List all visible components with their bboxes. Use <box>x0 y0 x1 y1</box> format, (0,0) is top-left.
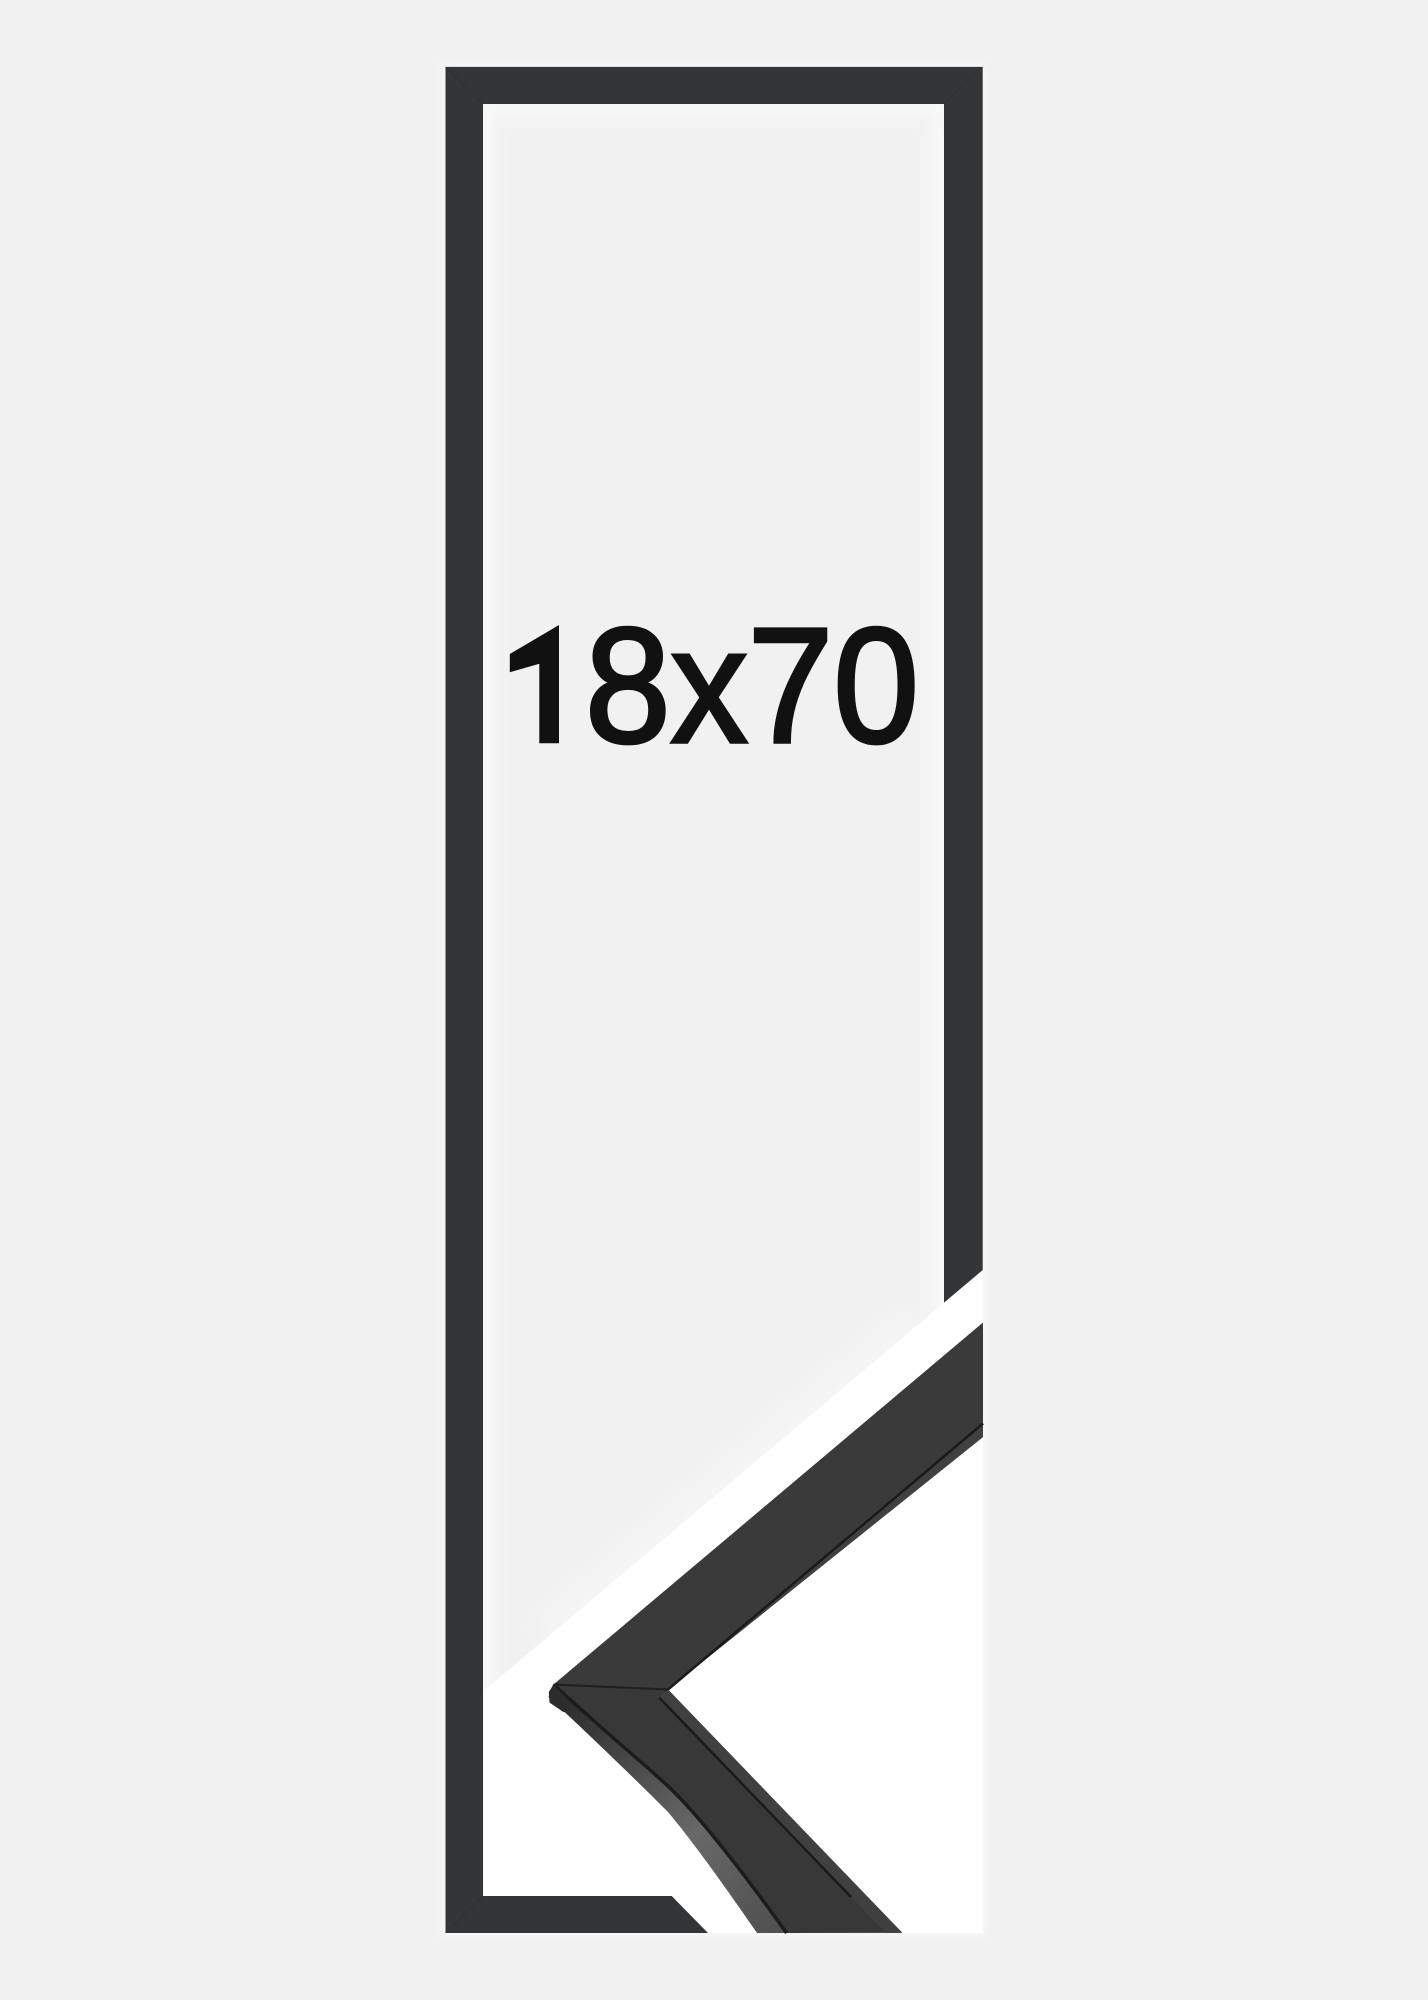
svg-text:8x70: 8x70 <box>585 594 919 777</box>
